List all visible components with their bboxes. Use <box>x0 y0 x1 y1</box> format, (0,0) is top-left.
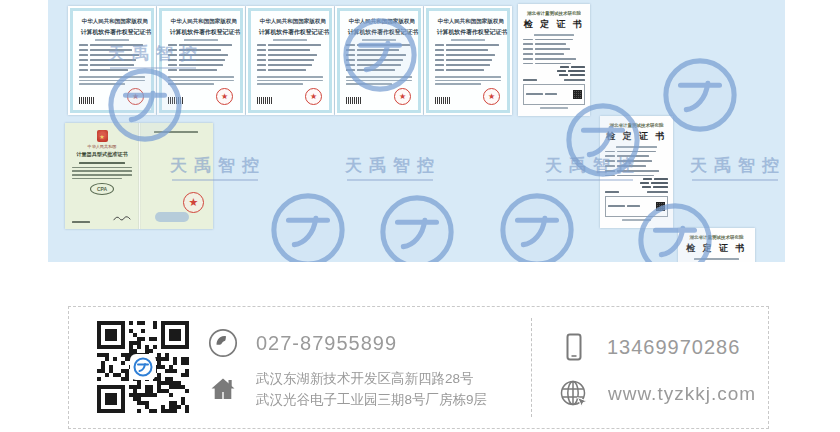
text-line-placeholder <box>570 74 585 76</box>
text-line-placeholder <box>184 39 218 41</box>
dates-row <box>523 79 585 81</box>
barcode-icon <box>435 97 451 104</box>
signer-row <box>605 182 668 184</box>
text-line-placeholder <box>357 54 406 56</box>
text-line-placeholder <box>357 64 401 66</box>
text-line-placeholder <box>257 80 323 82</box>
certificate-title: 计算机软件著作权登记证书 <box>259 28 322 37</box>
qr-center-logo <box>131 355 155 379</box>
barcode-icon <box>257 97 273 104</box>
field-row <box>523 43 585 45</box>
text-line-placeholder <box>346 54 355 56</box>
text-line-placeholder <box>168 83 214 85</box>
certificate-title: 检 定 证 书 <box>605 130 668 143</box>
text-line-placeholder <box>72 178 122 180</box>
text-line-placeholder <box>257 54 266 56</box>
certificate-issuer: 中华人民共和国国家版权局 <box>349 17 410 25</box>
certificate-copyright: 中华人民共和国国家版权局 计算机软件著作权登记证书 ★ <box>246 6 334 115</box>
address-line-2: 武汉光谷电子工业园三期8号厂房栋9层 <box>256 390 487 411</box>
field-row <box>257 69 323 71</box>
brand-logo-icon <box>133 357 153 377</box>
text-line-placeholder <box>605 155 615 157</box>
field-row <box>168 49 234 51</box>
field-row <box>346 59 412 61</box>
certificate-issuer: 中华人民共和国国家版权局 <box>260 17 321 25</box>
phone-row: 027-87955899 <box>207 327 397 359</box>
text-line-placeholder <box>357 69 395 71</box>
red-seal-icon: ★ <box>305 88 322 105</box>
text-line-placeholder <box>179 59 225 61</box>
certificate-issuer: 中华人民共和国国家版权局 <box>438 17 499 25</box>
text-line-placeholder <box>179 44 232 46</box>
text-line-placeholder <box>617 170 659 172</box>
text-line-placeholder <box>435 76 501 78</box>
text-line-placeholder <box>446 54 495 56</box>
contact-card: 027-87955899 武汉东湖新技术开发区高新四路28号 武汉光谷电子工业园… <box>68 306 769 429</box>
text-line-placeholder <box>72 174 132 176</box>
text-line-placeholder <box>179 49 221 51</box>
text-line-placeholder <box>605 170 615 172</box>
text-line-placeholder <box>617 175 654 177</box>
certificate-issuer: 湖北省计量测试技术研究院 <box>608 122 665 127</box>
text-line-placeholder <box>79 59 88 61</box>
text-line-placeholder <box>535 63 571 65</box>
text-line-placeholder <box>257 64 266 66</box>
text-line-placeholder <box>357 59 403 61</box>
text-line-placeholder <box>257 83 303 85</box>
mobile-number: 13469970286 <box>607 336 740 359</box>
qr-stamp-icon <box>656 202 665 211</box>
text-line-placeholder <box>564 79 585 81</box>
field-row <box>605 170 668 172</box>
certificate-copyright: 中华人民共和国国家版权局 计算机软件著作权登记证书 ★ <box>335 6 423 115</box>
certificate-title: 检 定 证 书 <box>523 18 585 31</box>
red-seal-icon: ★ <box>183 192 204 213</box>
text-line-placeholder <box>168 49 177 51</box>
text-line-placeholder <box>523 48 533 50</box>
text-line-placeholder <box>605 160 615 162</box>
text-line-placeholder <box>79 80 145 82</box>
text-line-placeholder <box>79 162 126 164</box>
text-line-placeholder <box>435 64 444 66</box>
text-line-placeholder <box>535 58 576 60</box>
text-line-placeholder <box>90 54 139 56</box>
field-row <box>79 69 145 71</box>
text-line-placeholder <box>435 59 444 61</box>
certificate-copyright: 中华人民共和国国家版权局 计算机软件著作权登记证书 ★ <box>424 6 512 115</box>
field-row <box>523 58 585 60</box>
field-row <box>605 165 668 167</box>
field-row <box>257 59 323 61</box>
text-line-placeholder <box>362 39 396 41</box>
approval-right-page: ★ <box>139 123 213 229</box>
text-line-placeholder <box>179 64 223 66</box>
field-row <box>257 49 323 51</box>
field-row <box>523 48 585 50</box>
text-line-placeholder <box>617 151 656 153</box>
text-line-placeholder <box>346 76 412 78</box>
text-line-placeholder <box>154 131 199 133</box>
signer-row <box>605 186 668 188</box>
field-row <box>605 155 668 157</box>
text-line-placeholder <box>95 39 129 41</box>
text-line-placeholder <box>523 58 533 60</box>
text-line-placeholder <box>168 44 177 46</box>
certificate-border: 中华人民共和国国家版权局 计算机软件著作权登记证书 ★ <box>248 8 332 113</box>
text-line-placeholder <box>557 70 566 72</box>
certificate-verification: 湖北省计量测试技术研究院 检 定 证 书 <box>518 4 590 116</box>
text-line-placeholder <box>72 221 90 223</box>
qr-code <box>97 321 189 413</box>
field-row <box>346 69 412 71</box>
field-row <box>435 59 501 61</box>
field-row <box>346 54 412 56</box>
field-row <box>346 44 412 46</box>
text-line-placeholder <box>435 83 481 85</box>
text-line-placeholder <box>643 178 652 180</box>
text-line-placeholder <box>535 39 573 41</box>
field-row <box>168 59 234 61</box>
address-line-1: 武汉东湖新技术开发区高新四路28号 <box>256 369 487 390</box>
contact-divider <box>531 318 532 417</box>
field-row <box>168 64 234 66</box>
field-row <box>523 39 585 41</box>
text-line-placeholder <box>179 54 228 56</box>
signer-row <box>523 70 585 72</box>
text-line-placeholder <box>435 54 444 56</box>
mobile-row: 13469970286 <box>558 331 740 363</box>
barcode-icon <box>79 97 95 104</box>
globe-icon <box>557 377 591 411</box>
field-row <box>523 63 585 65</box>
barcode-icon <box>346 97 362 104</box>
field-row <box>435 69 501 71</box>
text-line-placeholder <box>357 49 399 51</box>
text-line-placeholder <box>268 64 312 66</box>
phone-number: 027-87955899 <box>256 332 397 355</box>
text-line-placeholder <box>435 44 444 46</box>
text-line-placeholder <box>640 182 649 184</box>
field-row <box>79 54 145 56</box>
text-line-placeholder <box>268 59 314 61</box>
text-line-placeholder <box>257 69 266 71</box>
certificates-panel: 中华人民共和国国家版权局 计算机软件著作权登记证书 ★ 中华人民共和国国家版权局… <box>48 0 785 262</box>
text-line-placeholder <box>605 165 615 167</box>
field-row <box>79 49 145 51</box>
text-line-placeholder <box>446 59 492 61</box>
qr-stamp-icon <box>573 90 582 99</box>
text-line-placeholder <box>268 69 306 71</box>
blue-stamp <box>155 212 189 222</box>
text-line-placeholder <box>79 64 88 66</box>
text-line-placeholder <box>435 69 444 71</box>
text-line-placeholder <box>616 146 658 148</box>
text-line-placeholder <box>560 66 569 68</box>
country-label: 中华人民共和国 <box>75 144 129 149</box>
national-emblem-icon: ★ <box>97 130 108 142</box>
red-seal-icon: ★ <box>394 88 411 105</box>
certificate-title: 计算机软件著作权登记证书 <box>170 28 233 37</box>
field-row <box>346 49 412 51</box>
text-line-placeholder <box>179 69 217 71</box>
text-line-placeholder <box>540 107 569 108</box>
certificate-title: 计量器具型式批准证书 <box>74 151 129 158</box>
text-line-placeholder <box>617 155 649 157</box>
text-line-placeholder <box>257 44 266 46</box>
certificate-issuer: 湖北省计量测试技术研究院 <box>686 234 746 239</box>
field-row <box>79 59 145 61</box>
text-line-placeholder <box>535 43 566 45</box>
text-line-placeholder <box>534 34 575 36</box>
text-line-placeholder <box>535 48 570 50</box>
address-row: 武汉东湖新技术开发区高新四路28号 武汉光谷电子工业园三期8号厂房栋9层 <box>207 369 487 411</box>
certificate-border: 中华人民共和国国家版权局 计算机软件著作权登记证书 ★ <box>70 8 154 113</box>
text-line-placeholder <box>535 53 564 55</box>
text-line-placeholder <box>168 64 177 66</box>
cpa-mark: CPA <box>90 183 114 195</box>
text-line-placeholder <box>346 83 392 85</box>
text-line-placeholder <box>346 64 355 66</box>
signer-row <box>523 74 585 76</box>
result-table <box>605 196 668 217</box>
text-line-placeholder <box>90 64 134 66</box>
text-line-placeholder <box>617 160 652 162</box>
text-line-placeholder <box>346 69 355 71</box>
field-row <box>346 64 412 66</box>
field-row <box>79 64 145 66</box>
certificate-border: 中华人民共和国国家版权局 计算机软件著作权登记证书 ★ <box>426 8 510 113</box>
certificate-issuer: 中华人民共和国国家版权局 <box>171 17 232 25</box>
text-line-placeholder <box>608 205 625 207</box>
text-line-placeholder <box>523 39 533 41</box>
text-line-placeholder <box>605 191 619 193</box>
text-line-placeholder <box>168 54 177 56</box>
text-line-placeholder <box>79 76 145 78</box>
dates-row <box>605 191 668 193</box>
mobile-icon <box>558 331 590 363</box>
certificate-border: 中华人民共和国国家版权局 计算机软件著作权登记证书 ★ <box>159 8 243 113</box>
field-row <box>257 44 323 46</box>
field-row <box>257 64 323 66</box>
text-line-placeholder <box>257 49 266 51</box>
text-line-placeholder <box>357 44 410 46</box>
field-row <box>435 44 501 46</box>
text-line-placeholder <box>559 74 568 76</box>
text-line-placeholder <box>257 59 266 61</box>
text-line-placeholder <box>79 54 88 56</box>
text-line-placeholder <box>622 219 651 220</box>
text-line-placeholder <box>346 59 355 61</box>
text-line-placeholder <box>435 80 501 82</box>
text-line-placeholder <box>545 93 557 95</box>
website-row: www.tyzkkj.com <box>557 377 756 411</box>
text-line-placeholder <box>268 54 317 56</box>
text-line-placeholder <box>694 258 738 260</box>
certificate-title: 计算机软件著作权登记证书 <box>437 28 500 37</box>
text-line-placeholder <box>168 80 234 82</box>
home-icon <box>207 373 239 405</box>
text-line-placeholder <box>451 39 485 41</box>
text-line-placeholder <box>617 165 646 167</box>
field-row <box>435 54 501 56</box>
text-line-placeholder <box>526 93 543 95</box>
text-line-placeholder <box>523 53 533 55</box>
certificate-verification: 湖北省计量测试技术研究院 检 定 证 书 <box>600 116 673 228</box>
text-line-placeholder <box>90 59 136 61</box>
red-seal-icon: ★ <box>216 88 233 105</box>
text-line-placeholder <box>90 69 128 71</box>
certificate-issuer: 湖北省计量测试技术研究院 <box>526 10 582 15</box>
text-line-placeholder <box>168 76 234 78</box>
signer-row <box>523 66 585 68</box>
text-line-placeholder <box>79 44 88 46</box>
signature-row <box>72 214 132 223</box>
text-line-placeholder <box>79 49 88 51</box>
text-line-placeholder <box>90 49 132 51</box>
signature-icon <box>112 214 132 223</box>
text-line-placeholder <box>523 43 533 45</box>
text-line-placeholder <box>435 49 444 51</box>
text-line-placeholder <box>90 44 143 46</box>
field-row <box>168 69 234 71</box>
text-line-placeholder <box>653 186 668 188</box>
certificate-verification: 湖北省计量测试技术研究院 检 定 证 书 <box>678 228 755 262</box>
field-row <box>435 49 501 51</box>
certificate-title: 检 定 证 书 <box>683 242 750 255</box>
text-line-placeholder <box>72 170 132 172</box>
text-line-placeholder <box>446 69 484 71</box>
certificate-copyright: 中华人民共和国国家版权局 计算机软件著作权登记证书 ★ <box>157 6 245 115</box>
text-line-placeholder <box>654 178 668 180</box>
company-address: 武汉东湖新技术开发区高新四路28号 武汉光谷电子工业园三期8号厂房栋9层 <box>256 369 487 411</box>
field-row <box>168 54 234 56</box>
field-row <box>605 175 668 177</box>
certificate-copyright: 中华人民共和国国家版权局 计算机软件著作权登记证书 ★ <box>68 6 156 115</box>
text-line-placeholder <box>571 66 585 68</box>
text-line-placeholder <box>627 205 640 207</box>
text-line-placeholder <box>642 186 651 188</box>
certificate-issuer: 中华人民共和国国家版权局 <box>82 17 143 25</box>
certificate-border: 中华人民共和国国家版权局 计算机软件著作权登记证书 ★ <box>337 8 421 113</box>
text-line-placeholder <box>346 80 412 82</box>
field-row <box>79 44 145 46</box>
field-row <box>523 53 585 55</box>
result-table <box>523 84 585 105</box>
text-line-placeholder <box>72 167 132 169</box>
text-line-placeholder <box>605 175 615 177</box>
text-line-placeholder <box>79 83 125 85</box>
text-line-placeholder <box>268 49 310 51</box>
field-row <box>168 44 234 46</box>
text-line-placeholder <box>568 70 585 72</box>
certificate-title: 计算机软件著作权登记证书 <box>81 28 144 37</box>
barcode-icon <box>168 97 184 104</box>
text-line-placeholder <box>651 182 668 184</box>
website-url[interactable]: www.tyzkkj.com <box>608 383 756 405</box>
red-seal-icon: ★ <box>483 88 500 105</box>
certificate-type-approval: ★ 中华人民共和国 计量器具型式批准证书 CPA ★ <box>65 123 213 229</box>
text-line-placeholder <box>605 151 615 153</box>
approval-left-page: ★ 中华人民共和国 计量器具型式批准证书 CPA <box>65 123 139 229</box>
field-row <box>605 160 668 162</box>
text-line-placeholder <box>346 44 355 46</box>
text-line-placeholder <box>446 64 490 66</box>
signer-row <box>605 178 668 180</box>
certificate-title: 计算机软件著作权登记证书 <box>348 28 411 37</box>
text-line-placeholder <box>268 44 321 46</box>
text-line-placeholder <box>446 44 499 46</box>
text-line-placeholder <box>523 79 537 81</box>
text-line-placeholder <box>346 49 355 51</box>
text-line-placeholder <box>79 69 88 71</box>
text-line-placeholder <box>168 69 177 71</box>
phone-icon <box>207 327 239 359</box>
red-seal-icon: ★ <box>127 88 144 105</box>
text-line-placeholder <box>446 49 488 51</box>
text-line-placeholder <box>257 76 323 78</box>
text-line-placeholder <box>168 59 177 61</box>
certificates-collage: 中华人民共和国国家版权局 计算机软件著作权登记证书 ★ 中华人民共和国国家版权局… <box>48 0 785 262</box>
field-row <box>257 54 323 56</box>
field-row <box>605 151 668 153</box>
text-line-placeholder <box>647 191 668 193</box>
text-line-placeholder <box>523 63 533 65</box>
field-row <box>435 64 501 66</box>
text-line-placeholder <box>273 39 307 41</box>
